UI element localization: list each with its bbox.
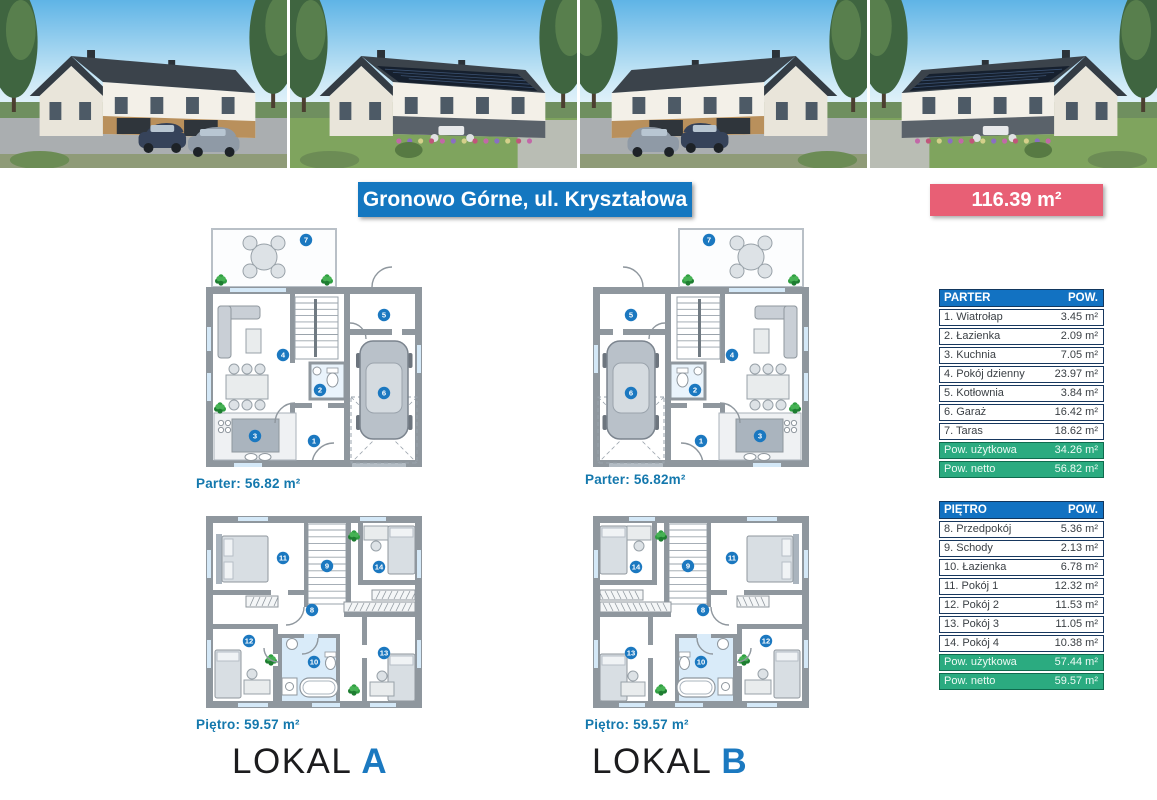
table-area-column: POW.	[1068, 292, 1098, 304]
room-label: 4. Pokój dzienny	[944, 368, 1025, 380]
room-label: 11. Pokój 1	[944, 580, 998, 592]
parter-area-table: PARTERPOW.1. Wiatrołap3.45 m²2. Łazienka…	[939, 289, 1104, 478]
table-row: 3. Kuchnia7.05 m²	[939, 347, 1104, 364]
svg-text:13: 13	[627, 649, 635, 658]
room-area: 5.36 m²	[1061, 523, 1098, 535]
floor-plan-parter-lokal-b: 1234567	[581, 227, 821, 473]
table-row: 11. Pokój 112.32 m²	[939, 578, 1104, 595]
lokal-a-word: LOKAL	[232, 742, 352, 781]
table-header: PIĘTROPOW.	[939, 501, 1104, 519]
lokal-a-title: LOKALA	[232, 742, 388, 782]
room-label: 1. Wiatrołap	[944, 311, 1003, 323]
pietro-plan-drawing: 891011121314	[194, 512, 434, 712]
svg-text:6: 6	[629, 389, 633, 398]
table-row: 4. Pokój dzienny23.97 m²	[939, 366, 1104, 383]
svg-text:10: 10	[310, 658, 318, 667]
room-label: 10. Łazienka	[944, 561, 1006, 573]
table-row: 13. Pokój 311.05 m²	[939, 616, 1104, 633]
room-label: 8. Przedpokój	[944, 523, 1011, 535]
table-total-row: Pow. użytkowa57.44 m²	[939, 654, 1104, 671]
floor-plan-parter-lokal-a: 1234567	[194, 227, 434, 473]
table-row: 7. Taras18.62 m²	[939, 423, 1104, 440]
photo-strip	[0, 0, 1157, 168]
location-banner-text: Gronowo Górne, ul. Kryształowa	[363, 188, 687, 212]
svg-text:7: 7	[707, 236, 711, 245]
room-label: 9. Schody	[944, 542, 993, 554]
svg-text:11: 11	[728, 554, 737, 563]
svg-text:2: 2	[693, 386, 697, 395]
garden-view-photo-2	[870, 0, 1157, 168]
svg-text:14: 14	[632, 563, 641, 572]
garden-view-photo-1	[290, 0, 577, 168]
table-row: 6. Garaż16.42 m²	[939, 404, 1104, 421]
room-area: 12.32 m²	[1055, 580, 1098, 592]
pietro-area-label-b: Piętro: 59.57 m²	[585, 717, 689, 732]
svg-text:12: 12	[762, 637, 770, 646]
room-area: 34.26 m²	[1055, 444, 1098, 456]
brochure-page: Gronowo Górne, ul. Kryształowa 116.39 m²…	[0, 0, 1157, 800]
table-row: 9. Schody2.13 m²	[939, 540, 1104, 557]
svg-text:11: 11	[279, 554, 288, 563]
table-row: 8. Przedpokój5.36 m²	[939, 521, 1104, 538]
svg-text:2: 2	[318, 386, 322, 395]
lokal-a-letter: A	[361, 742, 388, 781]
room-area: 7.05 m²	[1061, 349, 1098, 361]
room-label: 14. Pokój 4	[944, 637, 999, 649]
parter-area-label-b: Parter: 56.82m²	[585, 472, 686, 487]
svg-text:3: 3	[253, 432, 257, 441]
svg-text:14: 14	[375, 563, 384, 572]
svg-text:7: 7	[304, 236, 308, 245]
room-area: 16.42 m²	[1055, 406, 1098, 418]
parter-plan-drawing: 1234567	[581, 227, 821, 473]
svg-text:8: 8	[310, 606, 314, 615]
room-label: 2. Łazienka	[944, 330, 1000, 342]
table-row: 2. Łazienka2.09 m²	[939, 328, 1104, 345]
room-label: Pow. netto	[944, 675, 995, 687]
pietro-area-label-a: Piętro: 59.57 m²	[196, 717, 300, 732]
room-label: Pow. użytkowa	[944, 656, 1017, 668]
table-total-row: Pow. netto59.57 m²	[939, 673, 1104, 690]
floor-plan-pietro-lokal-b: 891011121314	[581, 512, 821, 712]
room-area: 59.57 m²	[1055, 675, 1098, 687]
table-row: 5. Kotłownia3.84 m²	[939, 385, 1104, 402]
room-label: 5. Kotłownia	[944, 387, 1004, 399]
svg-text:13: 13	[380, 649, 388, 658]
room-label: Pow. użytkowa	[944, 444, 1017, 456]
street-view-photo-2	[580, 0, 867, 168]
room-area: 11.53 m²	[1055, 599, 1098, 611]
room-area: 11.05 m²	[1055, 618, 1098, 630]
room-label: 3. Kuchnia	[944, 349, 996, 361]
location-banner: Gronowo Górne, ul. Kryształowa	[358, 182, 692, 217]
table-row: 10. Łazienka6.78 m²	[939, 559, 1104, 576]
room-label: 12. Pokój 2	[944, 599, 999, 611]
total-area-text: 116.39 m²	[971, 189, 1061, 212]
table-total-row: Pow. netto56.82 m²	[939, 461, 1104, 478]
room-area: 3.84 m²	[1061, 387, 1098, 399]
room-label: 7. Taras	[944, 425, 983, 437]
lokal-b-letter: B	[721, 742, 748, 781]
total-area-badge: 116.39 m²	[930, 184, 1103, 216]
lokal-b-title: LOKALB	[592, 742, 748, 782]
room-area: 2.09 m²	[1061, 330, 1098, 342]
table-row: 14. Pokój 410.38 m²	[939, 635, 1104, 652]
room-label: 6. Garaż	[944, 406, 986, 418]
table-total-row: Pow. użytkowa34.26 m²	[939, 442, 1104, 459]
street-view-photo-1	[0, 0, 287, 168]
room-area: 6.78 m²	[1061, 561, 1098, 573]
svg-text:8: 8	[701, 606, 705, 615]
parter-area-label-a: Parter: 56.82 m²	[196, 476, 301, 491]
lokal-b-word: LOKAL	[592, 742, 712, 781]
pietro-area-table: PIĘTROPOW.8. Przedpokój5.36 m²9. Schody2…	[939, 501, 1104, 690]
table-title: PARTER	[944, 292, 990, 304]
room-area: 23.97 m²	[1055, 368, 1098, 380]
room-area: 56.82 m²	[1055, 463, 1098, 475]
room-label: Pow. netto	[944, 463, 995, 475]
room-area: 2.13 m²	[1061, 542, 1098, 554]
svg-text:12: 12	[245, 637, 253, 646]
room-area: 10.38 m²	[1055, 637, 1098, 649]
table-row: 1. Wiatrołap3.45 m²	[939, 309, 1104, 326]
room-area: 57.44 m²	[1055, 656, 1098, 668]
room-label: 13. Pokój 3	[944, 618, 999, 630]
room-area: 3.45 m²	[1061, 311, 1098, 323]
room-area: 18.62 m²	[1055, 425, 1098, 437]
svg-text:9: 9	[686, 562, 690, 571]
svg-text:10: 10	[697, 658, 705, 667]
table-area-column: POW.	[1068, 504, 1098, 516]
parter-plan-drawing: 1234567	[194, 227, 434, 473]
floor-plan-pietro-lokal-a: 891011121314	[194, 512, 434, 712]
pietro-plan-drawing: 891011121314	[581, 512, 821, 712]
svg-text:3: 3	[758, 432, 762, 441]
svg-text:9: 9	[325, 562, 329, 571]
table-row: 12. Pokój 211.53 m²	[939, 597, 1104, 614]
table-title: PIĘTRO	[944, 504, 987, 516]
svg-text:6: 6	[382, 389, 386, 398]
table-header: PARTERPOW.	[939, 289, 1104, 307]
